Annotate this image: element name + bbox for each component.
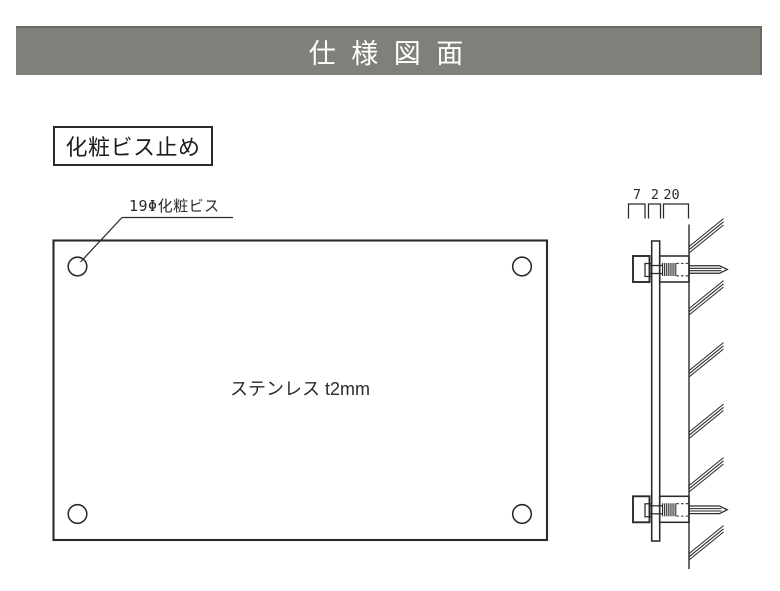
dimension-label-7: 7: [633, 187, 641, 203]
corner-hole-bottom-left: [68, 505, 87, 524]
dimension-label-2: 2: [651, 187, 659, 203]
plate-side-profile: [652, 241, 660, 541]
screw-assembly-bottom: [633, 496, 727, 522]
corner-hole-bottom-right: [513, 505, 532, 524]
screw-assembly-top: [633, 256, 727, 282]
corner-hole-top-right: [513, 257, 532, 276]
dimension-brackets: [629, 204, 689, 219]
dimension-label-20: 20: [663, 187, 679, 203]
technical-drawing: 19Φ化粧ビス ステンレス t2mm 7 2 20: [0, 0, 780, 591]
front-view: 19Φ化粧ビス ステンレス t2mm: [54, 197, 548, 540]
material-label: ステンレス t2mm: [230, 379, 370, 399]
callout-label: 19Φ化粧ビス: [129, 197, 220, 215]
side-view: 7 2 20: [629, 187, 728, 569]
corner-hole-top-left: [68, 257, 87, 276]
